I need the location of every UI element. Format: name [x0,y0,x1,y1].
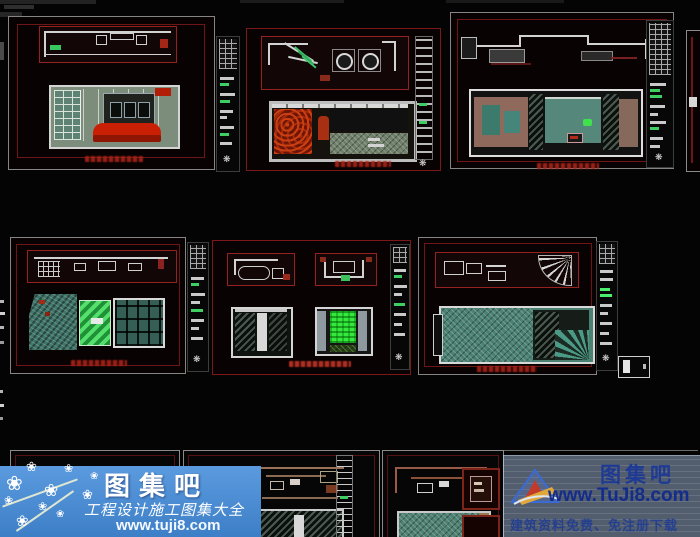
floor-texture [441,308,533,362]
sofa [93,123,161,142]
fixture [136,35,147,45]
header-strip [272,104,408,108]
titleblock-text [650,127,659,130]
center-band [257,313,267,351]
ceiling-fixture [581,51,613,61]
drawing-caption [477,366,537,372]
fixture [270,481,284,490]
titleblock-text [220,83,229,86]
brand-url[interactable]: www.TuJi8.com [548,485,689,507]
blossom-icon: ❀ [56,510,64,520]
titleblock-text [220,100,230,103]
edge-tick [0,326,4,329]
edge-tick [0,390,3,393]
red-framed-detail [462,468,500,510]
green-annotation [583,119,592,126]
elevation-view[interactable] [258,509,344,537]
red-annotation [39,300,45,304]
edge-tick [0,341,4,344]
titleblock-text [650,95,662,98]
fixture [74,263,86,271]
titleblock-text [220,110,233,113]
title-strip [336,455,353,537]
window [138,102,150,118]
titleblock-text [394,333,405,336]
titleblock-text [600,270,613,273]
title-block[interactable]: ❋ [390,244,410,370]
speaker-circle [362,53,379,70]
green-panel [330,311,356,343]
stair-fan [555,330,589,360]
edge-tick [0,300,4,303]
titleblock-text [191,309,203,312]
pipe-line [382,41,396,43]
sheet-mid-1[interactable] [10,237,186,374]
room-grid [113,298,165,348]
pipe-curve [238,266,270,280]
wall-line [362,260,364,278]
side-wall [358,311,367,351]
hatch-right [269,313,287,351]
edge-fragment [0,0,96,4]
wall-line [266,475,326,477]
titleblock-text [220,133,229,136]
drawing-caption [71,360,127,366]
sheet-top-border [502,450,698,451]
blossom-icon: ❀ [4,496,13,507]
edge-tick [0,404,4,407]
titleblock-text [600,312,608,315]
titleblock-grid [649,23,671,75]
watermark-overlay-right[interactable]: 图集吧 www.TuJi8.com 建筑资料免费、免注册下载 [503,455,700,537]
elevation-dark[interactable] [231,307,293,358]
blossom-icon: ❀ [26,460,37,473]
room-right [619,99,638,147]
titleblock-text [600,294,612,297]
titleblock-text [650,89,660,92]
fixture [110,33,134,40]
sheet-marker-icon: ❋ [655,153,663,162]
titleblock-text [191,283,199,286]
red-annotation [366,257,372,262]
titleblock-text [394,323,402,326]
brand-tagline: 建筑资料免费、免注册下载 [510,515,678,534]
titleblock-text [220,126,234,129]
grid-fixture [38,261,60,277]
elevation-view[interactable] [49,85,180,149]
floor-plan-view[interactable] [439,306,595,364]
cad-workspace: ❋ [0,0,700,537]
room-left [474,97,528,147]
red-figure [318,116,329,140]
red-annotation [611,57,637,59]
stub [461,37,477,59]
sheet-mid-3[interactable] [418,237,597,375]
column-strip [433,314,443,356]
center-band [294,515,304,537]
titleblock-text [600,332,609,335]
title-block[interactable]: ❋ [596,241,618,371]
blossom-icon: ❀ [38,502,47,513]
wall-panel [103,93,155,125]
ceiling-plan-view[interactable] [461,27,655,73]
red-annotation [491,63,531,65]
green-panel-base [330,345,356,352]
fireplace [567,133,583,143]
fixture [333,261,355,273]
brand-text: 图集吧 [104,466,209,503]
red-annotation [160,39,168,48]
pipe-line [394,41,396,71]
wall-hatch [603,94,619,150]
green-annotation [50,45,61,50]
brand-url[interactable]: www.tuji8.com [116,517,220,534]
detail-tick [474,482,482,485]
red-foliage [274,109,312,154]
green-annotation [341,275,350,281]
fixture [128,263,142,271]
red-annotation [283,274,290,280]
blossom-icon: ❀ [90,472,98,482]
legend-bar [623,360,630,373]
sheet-top-1[interactable] [8,16,215,170]
red-annotation [320,257,326,262]
wall-line [34,257,168,259]
furniture [488,271,506,281]
cabinet-grid [54,90,81,140]
edge-fragment [4,5,34,9]
wall-line [234,259,278,261]
watermark-banner-left[interactable]: ❀ ❀ ❀ ❀ ❀ ❀ ❀ ❀ ❀ ❀ 图集吧 工程设计施工图集大全 www.t… [0,466,261,537]
room-center [545,97,601,143]
titleblock-text [600,278,613,281]
titleblock-text [220,142,232,145]
titleblock-text [220,93,235,96]
titleblock-text [191,327,199,330]
titleblock-text [600,342,612,345]
speaker-circle [336,53,353,70]
titleblock-grid [393,247,407,263]
label-chip [91,318,103,324]
blossom-icon: ❀ [44,482,58,499]
elevation-green[interactable] [315,307,373,356]
drawing-caption [537,163,599,169]
dark-area [330,109,408,131]
ceiling-plan-view[interactable] [27,250,177,283]
wall-line [44,31,171,33]
red-framed-detail [462,515,500,537]
titleblock-text [600,288,610,291]
title-block[interactable]: ❋ [187,242,209,372]
title-block[interactable]: ❋ [646,20,674,168]
sheet-marker-icon: ❋ [223,155,231,164]
titleblock-text [220,116,227,119]
edge-fragment [240,0,344,3]
titleblock-text [394,313,406,316]
floor-plan-view[interactable] [469,89,643,157]
side-wall [317,311,326,351]
elevation-view[interactable] [269,101,417,162]
titleblock-text [650,83,666,86]
titleblock-text [191,319,204,322]
drawing-caption [335,161,391,167]
fixture [417,483,433,493]
title-strip [415,36,433,160]
hatch-left [235,313,255,351]
titleblock-text [650,105,665,108]
window [124,102,136,118]
legend-tick [643,364,646,369]
titleblock-text [394,303,405,306]
titleblock-text [220,77,234,80]
red-annotation [158,259,164,269]
titleblock-text [650,113,658,116]
wall-line [587,43,647,45]
titleblock-text [394,275,402,278]
red-annotation [155,88,171,96]
furniture [444,261,464,275]
sheet-marker-icon: ❋ [193,355,201,364]
furniture [482,105,500,135]
sheet-top-4-partial[interactable] [686,30,700,172]
wall-line [268,43,270,65]
ceiling-plan-view[interactable] [39,26,177,63]
blossom-icon: ❀ [6,474,23,494]
text-tick [368,138,380,141]
titleblock-text [191,293,205,296]
sheet-mid-2[interactable] [212,240,411,375]
titleblock-grid [219,39,237,69]
fixture [98,261,116,271]
edge-tick [0,312,5,315]
stair-texture [29,294,77,350]
sheet-marker-icon: ❋ [395,353,403,362]
drawing-caption [289,361,351,367]
titleblock-grid [599,244,615,264]
furniture [504,111,520,133]
fixture [96,35,107,45]
wall-line [519,35,589,37]
titleblock-text [600,322,612,325]
red-annotation [570,136,578,139]
sheet-marker-icon: ❋ [602,354,610,363]
titleblock-text [419,121,427,124]
spiral-stair [538,255,572,286]
edge-tick [0,417,3,420]
titleblock-text [191,301,200,304]
window [110,102,122,118]
ceiling-plan-view[interactable] [256,461,344,503]
titleblock-text [191,277,204,280]
blossom-icon: ❀ [16,514,29,529]
titleblock-text [191,337,203,340]
sheet-top-2[interactable]: ❋ [246,28,441,171]
stair-section [533,310,589,360]
title-block[interactable]: ❋ [216,36,240,172]
furniture [466,263,482,274]
trim-line [545,97,601,99]
furniture-plan-view[interactable] [435,252,579,288]
fixture [439,481,449,487]
wall-line [262,497,338,499]
titleblock-text [419,103,427,106]
ceiling-plan-view[interactable] [261,36,409,90]
wall-line [486,265,506,267]
linework [689,97,697,107]
detail-plan-2[interactable] [315,253,377,286]
legend-box[interactable] [618,356,650,378]
fixture [290,479,300,485]
ceiling-fixture [489,49,525,63]
sheet-top-3[interactable] [450,12,674,169]
floor-plan-view[interactable] [29,292,165,350]
edge-tick [0,42,4,60]
wall-line [395,467,397,493]
wall-line [234,259,236,275]
blossom-icon: ❀ [64,464,73,475]
wall-hatch [529,94,543,150]
drawing-caption [85,156,143,162]
titleblock-text [394,293,402,296]
sofa-shadow [93,135,161,142]
header-strip [235,309,287,312]
titleblock-text [340,496,348,499]
titleblock-text [650,121,666,124]
red-annotation [45,312,50,316]
detail-tick [474,489,484,492]
wall-line [256,467,344,469]
text-tick [368,144,384,147]
red-annotation [320,75,330,81]
titleblock-text [650,137,663,140]
wall-line [411,477,467,479]
detail-plan-1[interactable] [227,253,295,286]
edge-fragment [446,0,564,3]
titleblock-text [650,145,660,148]
wall-line [44,54,171,55]
titleblock-text [394,285,407,288]
titleblock-text [600,304,612,307]
sheet-marker-icon: ❋ [419,159,427,168]
titleblock-grid [190,245,206,269]
titleblock-text [394,269,406,272]
